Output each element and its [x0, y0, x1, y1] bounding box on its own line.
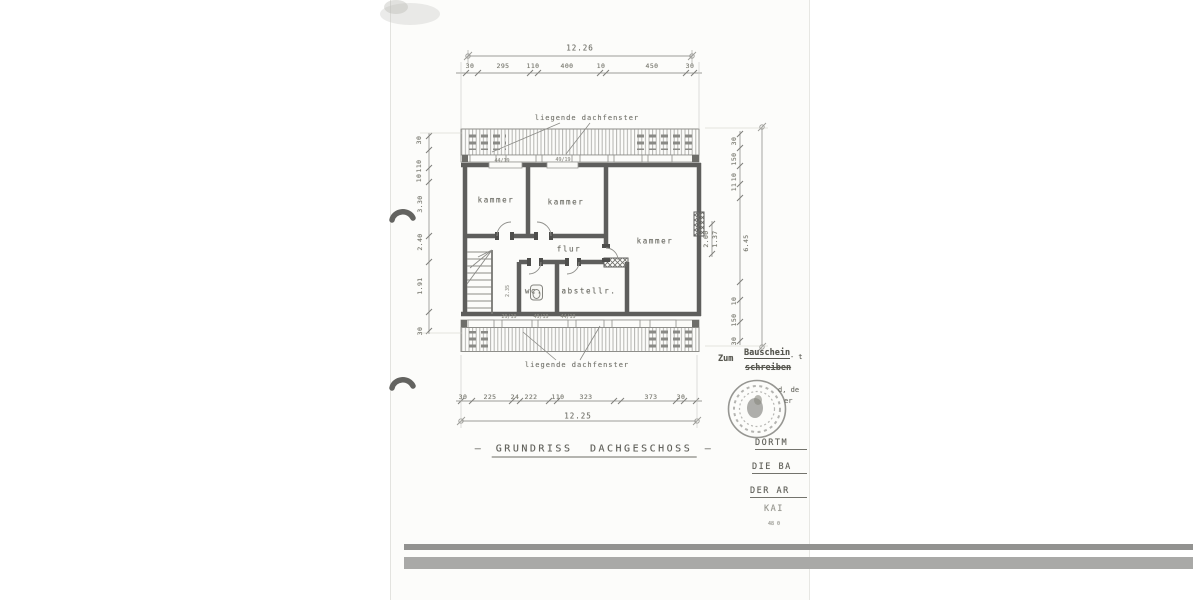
scan-bars	[404, 544, 1193, 569]
staircase	[467, 250, 492, 314]
dim-left-seg: 30	[415, 136, 423, 145]
dim-right-seg: 10	[730, 173, 738, 182]
dim-wc-height: 2.35	[505, 285, 511, 297]
stamp-schreiben-label: schreiben	[745, 363, 791, 373]
dim-right-seg: 11	[730, 183, 738, 192]
stamp-partial-text: d, de	[778, 386, 799, 394]
window-note: 49/19	[555, 157, 570, 163]
title-dash: —	[475, 444, 484, 455]
stamp-zum-label: Zum	[718, 354, 733, 364]
side-text-line3: DER AR	[750, 486, 807, 498]
window-note: 49/19	[533, 314, 548, 320]
room-label-kammer-mid: kammer	[548, 198, 585, 207]
dim-left-seg: 2.40	[416, 233, 424, 250]
drawing-title: — GRUNDRISS DACHGESCHOSS —	[475, 444, 714, 455]
dim-right-inner: 1.37	[711, 230, 719, 247]
dim-top-overall: 12.26	[566, 44, 594, 53]
punch-hole-icon	[392, 212, 413, 388]
roof-strip-bottom	[461, 320, 699, 360]
window-note: 29/19	[501, 314, 516, 320]
dim-right-seg: 150	[730, 314, 738, 327]
dim-top-seg: 450	[646, 62, 659, 70]
dim-bottom-seg: 222	[525, 393, 538, 401]
room-label-kammer-right: kammer	[637, 237, 674, 246]
dim-top-seg: 10	[597, 62, 606, 70]
stamp-bauschein-label: Bauschein	[744, 348, 790, 359]
page-title: GRUNDRISS DACHGESCHOSS	[492, 444, 696, 458]
stamp-partial-text: er	[784, 397, 792, 405]
room-label-abstell: abstellr.	[561, 287, 616, 296]
room-label-kammer-left: kammer	[478, 196, 515, 205]
window-note: 44/19	[560, 314, 575, 320]
roof-strip-top	[461, 123, 699, 162]
dim-right-seg: 150	[730, 153, 738, 166]
floorplan-drawing	[0, 0, 1200, 600]
dim-right-seg: 30	[730, 137, 738, 146]
dim-bottom-overall: 12.25	[564, 412, 592, 421]
dim-bottom-seg: 323	[580, 393, 593, 401]
dim-right-overall: 6.45	[742, 234, 750, 251]
side-text-line5: 48 0	[768, 521, 780, 527]
scan-smudge	[380, 0, 440, 25]
side-text-line4: KAI	[764, 504, 807, 515]
dim-top-seg: 295	[497, 62, 510, 70]
dim-left-seg: 10	[415, 174, 423, 183]
skylight-label-bottom: liegende dachfenster	[525, 361, 629, 369]
room-label-wc: wc.	[525, 287, 543, 296]
dim-left-seg: 30	[416, 327, 424, 336]
dim-bottom-seg: 30	[677, 393, 686, 401]
dim-left-seg: 1.91	[416, 277, 424, 294]
dim-top-seg: 400	[561, 62, 574, 70]
stamp-block: Zum Bauschein schreiben - t d, de er DOR…	[700, 340, 807, 540]
dim-top-seg: 30	[686, 62, 695, 70]
side-text-line1: DORTM	[755, 438, 807, 450]
room-label-flur: flur	[557, 245, 581, 254]
dim-bottom-seg: 373	[645, 393, 658, 401]
window-note: 44/19	[494, 158, 509, 164]
scanned-floorplan-page: 12.26 30 295 110 400 10 450 30 liegende …	[0, 0, 1200, 600]
skylight-label-top: liegende dachfenster	[535, 114, 639, 122]
dim-top-seg: 110	[527, 62, 540, 70]
dim-bottom-seg: 24	[511, 393, 520, 401]
dim-bottom-seg: 30	[459, 393, 468, 401]
dim-left-seg: 3.30	[416, 195, 424, 212]
dim-bottom-seg: 110	[552, 393, 565, 401]
dim-top-seg: 30	[466, 62, 475, 70]
side-text-line2: DIE BA	[752, 462, 807, 474]
dim-right-inner: 2.00	[702, 230, 710, 247]
dim-bottom-seg: 225	[484, 393, 497, 401]
stamp-dash-note: - t	[790, 353, 803, 361]
dim-left-seg: 110	[415, 160, 423, 173]
dim-right-seg: 10	[730, 297, 738, 306]
